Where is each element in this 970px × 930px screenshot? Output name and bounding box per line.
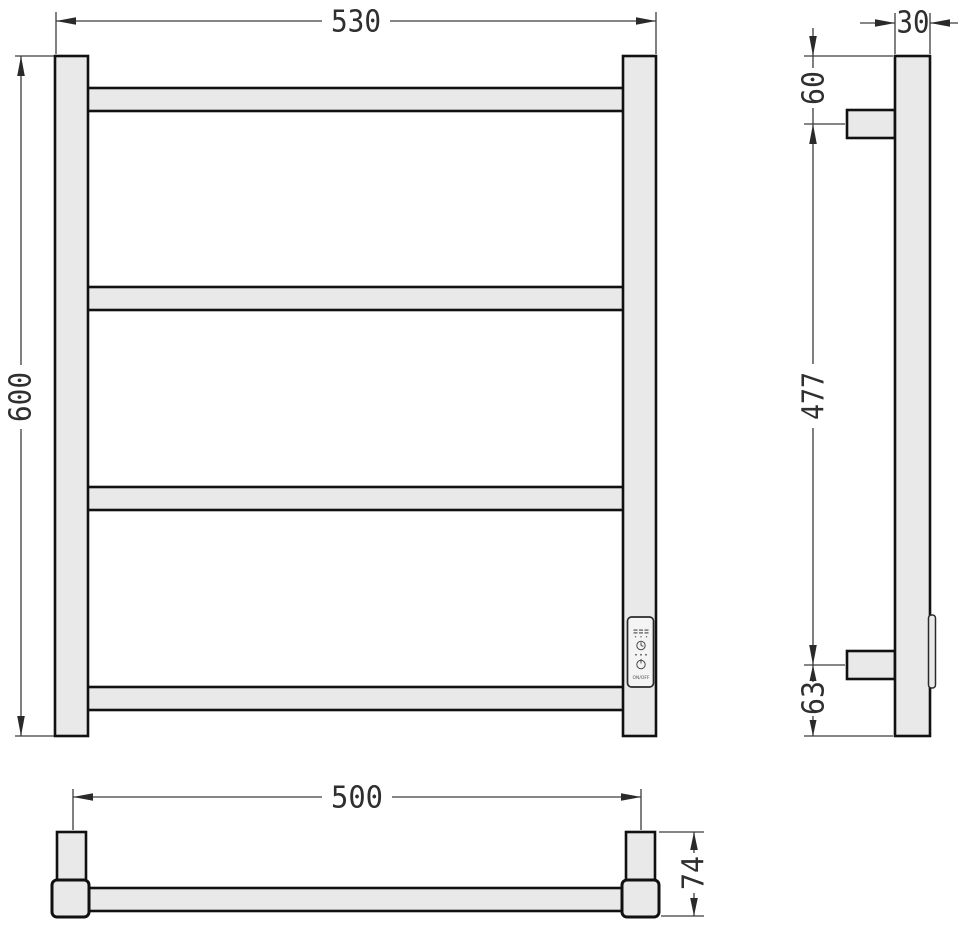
- rung-3: [87, 487, 625, 510]
- dim-label-530: 530: [331, 5, 381, 40]
- mount-stub-right: [626, 832, 655, 884]
- dim-front-height: 600: [4, 56, 55, 736]
- left-post: [55, 56, 88, 736]
- dim-label-74: 74: [677, 856, 712, 890]
- corner-block-right: [622, 880, 659, 917]
- dim-mount-span: 500: [73, 781, 641, 831]
- dim-label-30: 30: [897, 6, 930, 41]
- dim-label-63: 63: [797, 681, 832, 715]
- front-view: ON/OFF: [55, 56, 656, 736]
- rung-2: [87, 287, 625, 310]
- dim-side-depth: 30: [860, 6, 958, 55]
- corner-block-left: [52, 880, 89, 917]
- dim-label-600: 600: [4, 372, 39, 422]
- technical-drawing: ON/OFF 530 600: [0, 0, 970, 930]
- side-view: [847, 56, 936, 736]
- side-profile-bar: [895, 56, 930, 736]
- mount-stub-left: [57, 832, 86, 884]
- bottom-rail: [89, 888, 623, 911]
- wall-bracket-bottom: [847, 651, 895, 679]
- heat-level-marks-icon: [634, 630, 649, 638]
- wall-bracket-top: [847, 110, 895, 138]
- dim-front-width: 530: [56, 5, 656, 55]
- dim-label-60: 60: [797, 71, 832, 105]
- dim-bottom-depth: 74: [659, 832, 712, 916]
- drawing-svg: ON/OFF 530 600: [0, 0, 970, 930]
- panel-onoff-label: ON/OFF: [633, 675, 650, 681]
- control-panel: ON/OFF: [628, 617, 654, 687]
- control-panel-side: [929, 615, 936, 688]
- bottom-view: [52, 832, 659, 917]
- rung-4: [87, 687, 625, 710]
- rung-1: [87, 88, 625, 111]
- dim-label-477: 477: [797, 372, 832, 420]
- dim-label-500: 500: [331, 781, 383, 816]
- dim-bracket-span: 477: [797, 124, 846, 665]
